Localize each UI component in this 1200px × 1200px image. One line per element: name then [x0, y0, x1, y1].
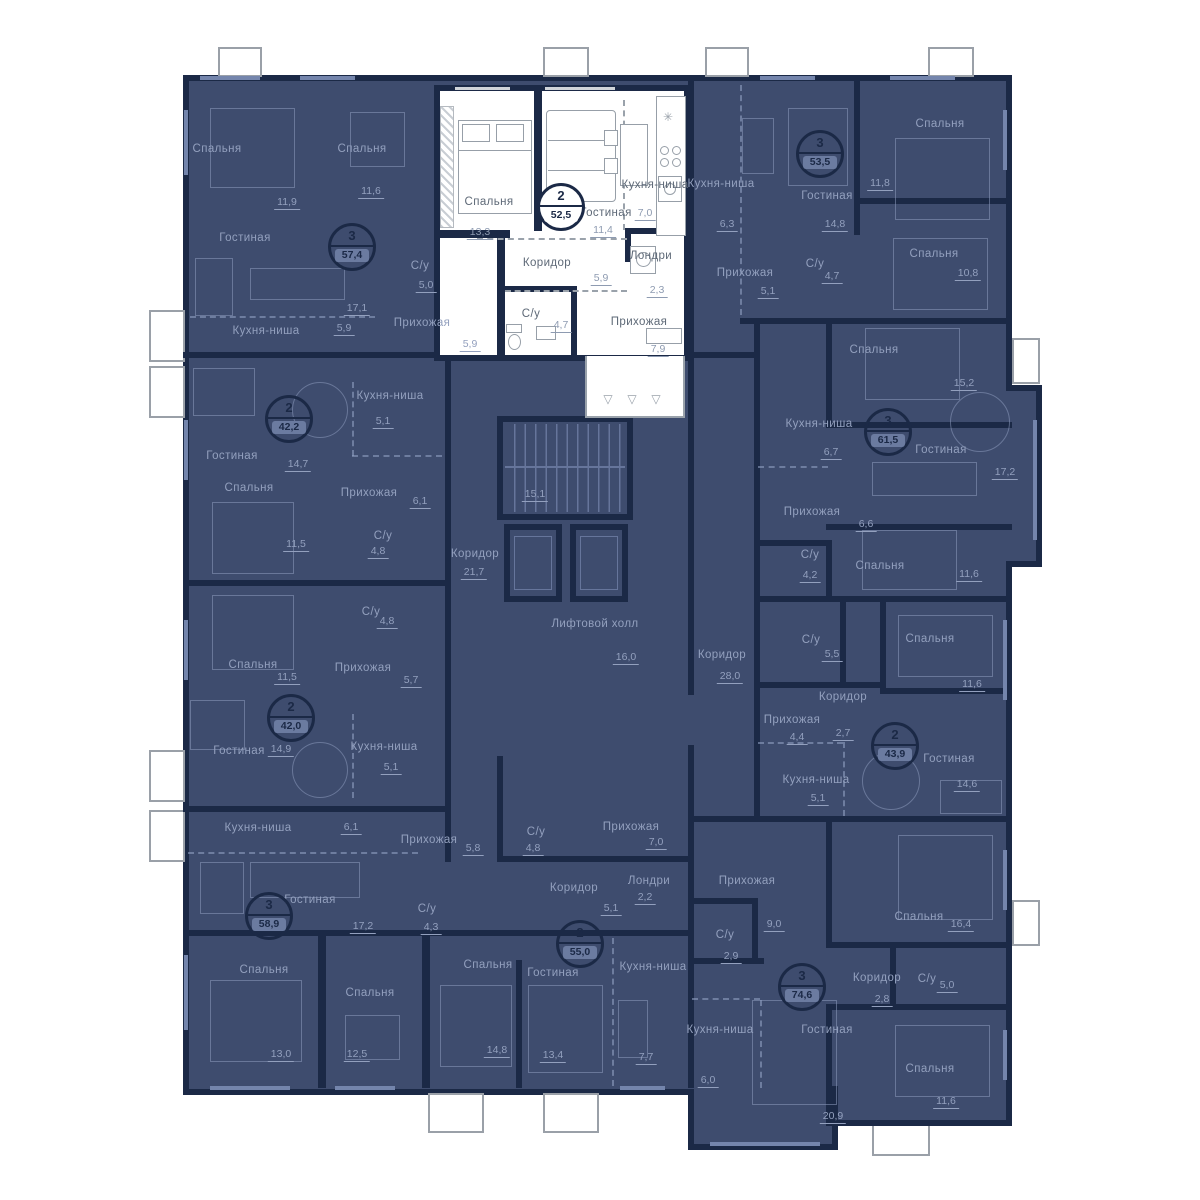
window [890, 76, 955, 80]
sofa [190, 700, 245, 750]
room-area: 7,7 [636, 1051, 657, 1065]
room-area: 17,1 [344, 302, 370, 316]
room-label: Кухня-ниша [686, 1024, 753, 1036]
balcony [1012, 338, 1040, 384]
coat-hook-icon: ▽ [603, 392, 612, 406]
room-area: 10,8 [955, 267, 981, 281]
wall [754, 682, 886, 688]
room-label: Гостиная [923, 753, 974, 765]
balcony [1012, 900, 1040, 946]
room-area: 5,1 [808, 792, 829, 806]
wall [183, 352, 445, 358]
room-label: Коридор [698, 649, 746, 661]
wall [688, 816, 1012, 822]
room-area: 28,0 [717, 670, 743, 684]
room-label: Кухня-ниша [232, 325, 299, 337]
badge-rooms-count: 3 [781, 966, 823, 987]
bed [898, 835, 993, 920]
window [184, 955, 188, 1030]
room-label: Кухня-ниша [356, 390, 423, 402]
room-area: 5,1 [601, 902, 622, 916]
wall [826, 1004, 1012, 1010]
room-area: 2,8 [872, 993, 893, 1007]
room-area: 15,2 [951, 377, 977, 391]
room-area: 11,6 [959, 678, 985, 692]
room-area: 16,4 [948, 918, 974, 932]
table [200, 862, 244, 914]
room-label: С/у [418, 903, 436, 915]
badge-rooms-count: 2 [540, 186, 582, 207]
room-label: Гостиная [580, 207, 631, 219]
room-area: 11,8 [867, 177, 893, 191]
sofa [872, 462, 977, 496]
badge-area: 57,4 [335, 249, 369, 262]
room-label: Кухня-ниша [350, 741, 417, 753]
room-area: 13,4 [540, 1049, 566, 1063]
zone-divider [505, 290, 627, 292]
badge-rooms-count: 3 [867, 411, 909, 432]
room-area: 11,6 [956, 568, 982, 582]
kitchen-divider [352, 382, 354, 456]
room-area: 20,9 [820, 1110, 846, 1124]
table [618, 1000, 648, 1058]
room-area: 5,1 [758, 285, 779, 299]
room-label: Коридор [523, 257, 571, 269]
room-label: Кухня-ниша [619, 961, 686, 973]
room-area: 2,2 [635, 891, 656, 905]
room-area: 11,9 [274, 196, 300, 210]
table [195, 258, 233, 316]
hallway-cabinet [646, 328, 682, 344]
room-area: 14,6 [954, 778, 980, 792]
room-area: 6,1 [410, 495, 431, 509]
wall [880, 688, 1012, 694]
room-label: Прихожая [784, 506, 841, 518]
room-area: 6,3 [717, 218, 738, 232]
unit-badge-42-2[interactable]: 2 42,2 [265, 395, 313, 443]
room-area: 21,7 [461, 566, 487, 580]
balcony [149, 310, 185, 362]
room-label: С/у [806, 258, 824, 270]
room-area: 2,9 [721, 950, 742, 964]
room-area: 4,8 [523, 842, 544, 856]
balcony [543, 47, 589, 77]
room-area: 5,9 [460, 338, 481, 352]
window [1003, 850, 1007, 910]
room-area: 5,1 [381, 761, 402, 775]
room-area: 6,0 [698, 1074, 719, 1088]
room-area: 14,8 [484, 1044, 510, 1058]
room-area: 13,3 [467, 226, 493, 240]
badge-rooms-count: 3 [331, 226, 373, 247]
room-area: 16,0 [613, 651, 639, 665]
room-label: Спальня [239, 964, 288, 976]
badge-area: 61,5 [871, 434, 905, 447]
room-area: 11,6 [358, 185, 384, 199]
room-label: Спальня [337, 143, 386, 155]
room-area: 11,4 [590, 224, 616, 238]
room-label: Гостиная [801, 1024, 852, 1036]
room-area: 11,6 [933, 1095, 959, 1109]
unit-badge-55-0[interactable]: 2 55,0 [556, 920, 604, 968]
coat-hook-icon: ▽ [651, 392, 660, 406]
window [335, 1086, 395, 1090]
window [545, 87, 615, 90]
wall [880, 602, 886, 690]
wall [183, 580, 451, 586]
room-area: 2,7 [833, 727, 854, 741]
room-area: 6,1 [341, 821, 362, 835]
room-label: Прихожая [611, 316, 668, 328]
balcony [543, 1093, 599, 1133]
room-area: 4,4 [787, 731, 808, 745]
balcony [928, 47, 974, 77]
room-area: 5,0 [937, 979, 958, 993]
wall [571, 286, 577, 356]
blanket-line [458, 150, 532, 151]
kitchen-divider [758, 466, 828, 468]
room-label: Гостиная [219, 232, 270, 244]
chair [604, 158, 618, 174]
room-label: Коридор [819, 691, 867, 703]
wall [445, 352, 451, 862]
wall [516, 960, 522, 1088]
room-area: 5,1 [373, 415, 394, 429]
room-label: Гостиная [801, 190, 852, 202]
room-label: Коридор [853, 972, 901, 984]
room-label: Спальня [464, 196, 513, 208]
toilet-bowl [508, 334, 521, 350]
room-label: С/у [801, 549, 819, 561]
window [210, 1086, 290, 1090]
sofa [250, 268, 345, 300]
room-label: С/у [522, 308, 540, 320]
balcony [428, 1093, 484, 1133]
window [1033, 420, 1037, 540]
window [1003, 110, 1007, 170]
room-label: Гостиная [206, 450, 257, 462]
wall [826, 816, 832, 948]
room-area: 6,6 [856, 518, 877, 532]
room-label: Спальня [228, 659, 277, 671]
elevator-car [514, 536, 552, 590]
kitchen-divider [352, 714, 354, 798]
balcony [872, 1124, 930, 1156]
room-area: 13,0 [268, 1048, 294, 1062]
wall [422, 936, 430, 1088]
balcony [149, 750, 185, 802]
room-area: 4,8 [377, 615, 398, 629]
room-area: 14,8 [822, 218, 848, 232]
bed [898, 615, 993, 677]
window [1003, 620, 1007, 700]
kitchen-divider [190, 316, 375, 318]
room-label: Лондри [630, 250, 672, 262]
room-label: Спальня [849, 344, 898, 356]
room-area: 14,7 [285, 458, 311, 472]
room-label: С/у [411, 260, 429, 272]
wall [826, 318, 832, 428]
wall [318, 936, 326, 1088]
room-label: Гостиная [213, 745, 264, 757]
elevator-car [580, 536, 618, 590]
room-area: 4,3 [421, 921, 442, 935]
room-area: 11,5 [274, 671, 300, 685]
room-area: 9,0 [764, 918, 785, 932]
bed [865, 328, 960, 400]
room-label: Прихожая [394, 317, 451, 329]
window [620, 1086, 665, 1090]
wall [740, 318, 1012, 324]
window [760, 76, 815, 80]
room-label: Спальня [224, 482, 273, 494]
badge-area: 58,9 [252, 918, 286, 931]
kitchen-divider [352, 455, 442, 457]
room-label: С/у [527, 826, 545, 838]
unit-badge-52-5[interactable]: 2 52,5 [537, 183, 585, 231]
zone-divider [477, 238, 627, 240]
room-label: Гостиная [284, 894, 335, 906]
unit-badge-74-6[interactable]: 3 74,6 [778, 963, 826, 1011]
window [710, 1142, 820, 1146]
room-label: Прихожая [603, 821, 660, 833]
round-table [292, 742, 348, 798]
pillow [496, 124, 524, 142]
window [184, 620, 188, 680]
room-area: 7,0 [635, 207, 656, 221]
stove-burner [660, 158, 669, 167]
badge-rooms-count: 2 [559, 923, 601, 944]
kitchen-divider [188, 852, 418, 854]
wall [497, 856, 690, 862]
room-area: 15,1 [522, 488, 548, 502]
sofa [193, 368, 255, 416]
window [1003, 1030, 1007, 1080]
room-area: 5,9 [334, 322, 355, 336]
window [455, 87, 510, 90]
room-label: Спальня [905, 1063, 954, 1075]
badge-area: 55,0 [563, 946, 597, 959]
window [184, 420, 188, 480]
sofa [752, 1000, 837, 1105]
room-area: 4,7 [822, 270, 843, 284]
room-area: 5,8 [463, 842, 484, 856]
unit-badge-43-9[interactable]: 2 43,9 [871, 722, 919, 770]
room-area: 5,9 [591, 272, 612, 286]
wall [840, 602, 846, 682]
balcony [149, 810, 185, 862]
window [184, 110, 188, 175]
room-label: Гостиная [915, 444, 966, 456]
room-area: 4,8 [368, 545, 389, 559]
room-label: Коридор [451, 548, 499, 560]
room-label: Прихожая [764, 714, 821, 726]
toilet-tank [506, 324, 522, 333]
wall [497, 238, 505, 356]
bed [895, 1025, 990, 1097]
room-area: 17,2 [350, 920, 376, 934]
room-label: Спальня [905, 633, 954, 645]
room-label: Кухня-ниша [224, 822, 291, 834]
badge-rooms-count: 2 [270, 697, 312, 718]
room-label: Лондри [628, 875, 670, 887]
pillow [462, 124, 490, 142]
room-area: 7,0 [646, 836, 667, 850]
stove-burner [672, 158, 681, 167]
vent-icon: ✳ [663, 110, 673, 124]
room-area: 4,7 [551, 319, 572, 333]
room-label: Спальня [345, 987, 394, 999]
badge-area: 53,5 [803, 156, 837, 169]
wall [688, 898, 758, 904]
table [620, 124, 648, 186]
room-area: 5,5 [822, 648, 843, 662]
wall [752, 898, 758, 964]
badge-rooms-count: 3 [248, 895, 290, 916]
room-label: Прихожая [719, 875, 776, 887]
badge-rooms-count: 2 [874, 725, 916, 746]
badge-area: 52,5 [544, 209, 578, 222]
room-area: 5,7 [401, 674, 422, 688]
unit-badge-42-0[interactable]: 2 42,0 [267, 694, 315, 742]
window [200, 76, 260, 80]
stove-burner [672, 146, 681, 155]
room-label: Гостиная [527, 967, 578, 979]
balcony [218, 47, 262, 77]
wall [826, 540, 832, 602]
stove-burner [660, 146, 669, 155]
badge-rooms-count: 2 [268, 398, 310, 419]
desk [350, 112, 405, 167]
coat-hook-icon: ▽ [627, 392, 636, 406]
kitchen-divider [692, 998, 760, 1000]
wall [754, 540, 832, 546]
room-label: Прихожая [401, 834, 458, 846]
room-label: Спальня [855, 560, 904, 572]
round-table [950, 392, 1010, 452]
wall [854, 75, 860, 235]
kitchen-divider [612, 938, 614, 1086]
balcony [149, 366, 185, 418]
room-area: 12,5 [344, 1048, 370, 1062]
room-label: Кухня-ниша [785, 418, 852, 430]
room-label: С/у [802, 634, 820, 646]
bed [895, 138, 990, 220]
room-label: С/у [918, 973, 936, 985]
wardrobe [440, 106, 454, 228]
wall [826, 942, 1012, 948]
badge-area: 74,6 [785, 989, 819, 1002]
room-label: Коридор [550, 882, 598, 894]
room-area: 6,7 [821, 446, 842, 460]
stair-landing-line [505, 466, 625, 468]
chair [604, 130, 618, 146]
unit-badge-58-9[interactable]: 3 58,9 [245, 892, 293, 940]
room-label: Кухня-ниша [687, 178, 754, 190]
wall [688, 352, 754, 358]
room-label: Прихожая [717, 267, 774, 279]
room-label: Спальня [192, 143, 241, 155]
wall [497, 756, 503, 862]
unit-badge-57-4[interactable]: 3 57,4 [328, 223, 376, 271]
room-area: 4,2 [800, 569, 821, 583]
badge-rooms-count: 3 [799, 133, 841, 154]
room-label: С/у [374, 530, 392, 542]
room-label: С/у [716, 929, 734, 941]
room-area: 2,3 [647, 284, 668, 298]
room-label: Спальня [915, 118, 964, 130]
entrance-vestibule [585, 356, 685, 418]
wall [826, 1120, 1012, 1126]
unit-badge-53-5[interactable]: 3 53,5 [796, 130, 844, 178]
room-area: 5,0 [416, 279, 437, 293]
window [300, 76, 355, 80]
room-label: Кухня-ниша [621, 179, 688, 191]
room-label: Лифтовой холл [551, 618, 638, 630]
bed [212, 502, 294, 574]
badge-area: 42,2 [272, 421, 306, 434]
room-area: 17,2 [992, 466, 1018, 480]
room-label: Спальня [894, 911, 943, 923]
room-label: Спальня [909, 248, 958, 260]
room-label: Спальня [463, 959, 512, 971]
balcony [705, 47, 749, 77]
room-label: Прихожая [335, 662, 392, 674]
room-area: 11,5 [283, 538, 309, 552]
floor-plan: ✳ ▽ ▽ ▽ Спальня 13,3 Гостиная 11,4 Кухня… [0, 0, 1200, 1200]
wall [183, 806, 451, 812]
badge-area: 43,9 [878, 748, 912, 761]
table [742, 118, 774, 174]
room-label: Прихожая [341, 487, 398, 499]
wall [688, 745, 694, 1088]
room-label: Кухня-ниша [782, 774, 849, 786]
room-area: 7,9 [648, 343, 669, 357]
room-area: 14,9 [268, 743, 294, 757]
unit-badge-61-5[interactable]: 3 61,5 [864, 408, 912, 456]
badge-area: 42,0 [274, 720, 308, 733]
